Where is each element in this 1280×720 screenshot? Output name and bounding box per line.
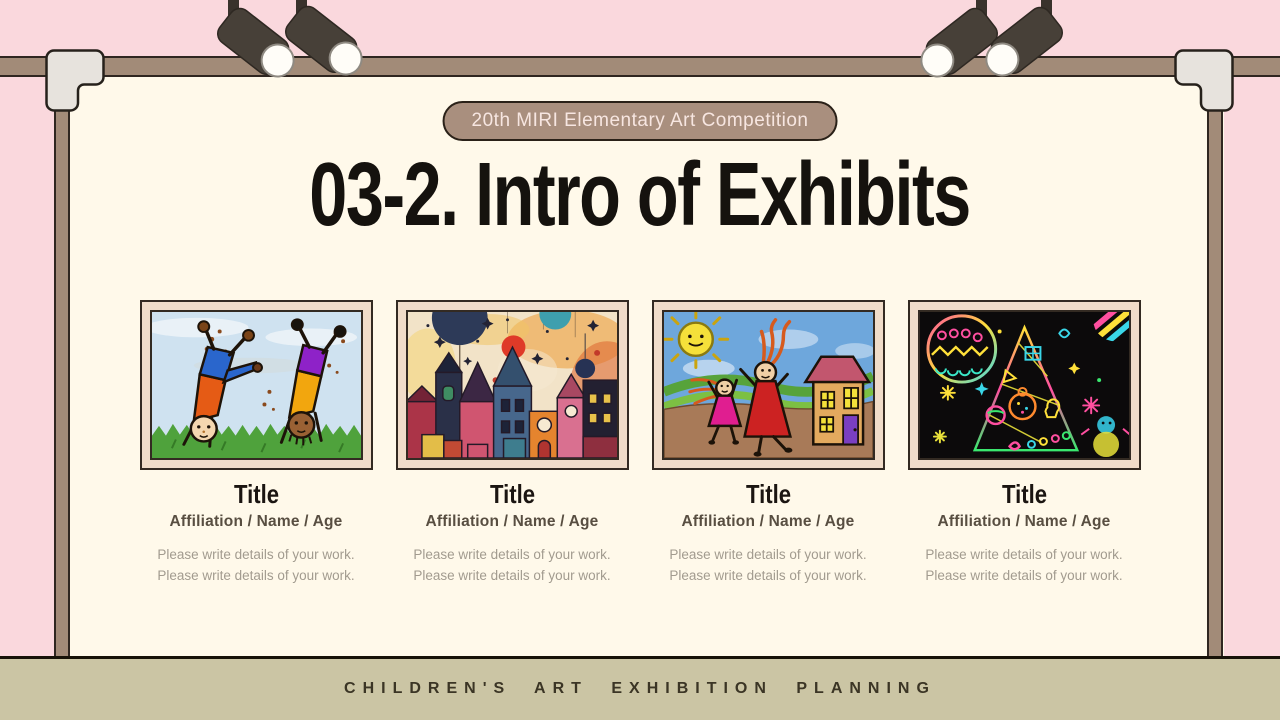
exhibit-subtitle: Affiliation / Name / Age	[396, 513, 629, 531]
exhibit-card: Title Affiliation / Name / Age Please wr…	[140, 300, 373, 586]
artwork-colorful-town	[408, 312, 617, 458]
artwork-frame	[652, 300, 885, 470]
artwork-mat	[918, 310, 1131, 460]
exhibit-details-line: Please write details of your work.	[396, 565, 629, 586]
artwork-frame	[908, 300, 1141, 470]
exhibit-details-line: Please write details of your work.	[140, 565, 373, 586]
exhibit-subtitle: Affiliation / Name / Age	[652, 513, 885, 531]
exhibit-details: Please write details of your work. Pleas…	[652, 544, 885, 586]
exhibit-details-line: Please write details of your work.	[652, 544, 885, 565]
footer-banner: CHILDREN'S ART EXHIBITION PLANNING	[0, 656, 1280, 720]
artwork-scratch-tree	[920, 312, 1129, 458]
artwork-family-house	[664, 312, 873, 458]
exhibit-subtitle: Affiliation / Name / Age	[908, 513, 1141, 531]
artwork-mat	[150, 310, 363, 460]
spotlight-icon	[267, 0, 377, 82]
exhibit-card: Title Affiliation / Name / Age Please wr…	[652, 300, 885, 586]
exhibit-details-line: Please write details of your work.	[140, 544, 373, 565]
exhibit-title: Title	[652, 479, 885, 510]
exhibit-card: Title Affiliation / Name / Age Please wr…	[396, 300, 629, 586]
exhibit-subtitle: Affiliation / Name / Age	[140, 513, 373, 531]
exhibit-details-line: Please write details of your work.	[652, 565, 885, 586]
exhibit-title: Title	[140, 479, 373, 510]
exhibit-details: Please write details of your work. Pleas…	[396, 544, 629, 586]
exhibit-title: Title	[396, 479, 629, 510]
artwork-frame	[396, 300, 629, 470]
artwork-mat	[662, 310, 875, 460]
exhibit-details: Please write details of your work. Pleas…	[908, 544, 1141, 586]
title-container: 03-2. Intro of Exhibits	[0, 148, 1280, 243]
exhibit-details-line: Please write details of your work.	[908, 544, 1141, 565]
page-title: 03-2. Intro of Exhibits	[310, 148, 971, 243]
corner-bracket-icon	[1174, 49, 1234, 112]
artwork-frame	[140, 300, 373, 470]
artwork-mat	[406, 310, 619, 460]
exhibit-details-line: Please write details of your work.	[396, 544, 629, 565]
exhibit-title: Title	[908, 479, 1141, 510]
exhibit-cards-row: Title Affiliation / Name / Age Please wr…	[70, 300, 1210, 586]
exhibit-details: Please write details of your work. Pleas…	[140, 544, 373, 586]
frame-rail-top	[0, 56, 1280, 77]
corner-bracket-icon	[45, 49, 105, 112]
exhibit-details-line: Please write details of your work.	[908, 565, 1141, 586]
competition-badge: 20th MIRI Elementary Art Competition	[443, 101, 838, 141]
slide: 20th MIRI Elementary Art Competition 03-…	[0, 0, 1280, 720]
exhibit-card: Title Affiliation / Name / Age Please wr…	[908, 300, 1141, 586]
spotlight-icon	[971, 0, 1081, 83]
artwork-cartwheel-kids	[152, 312, 361, 458]
